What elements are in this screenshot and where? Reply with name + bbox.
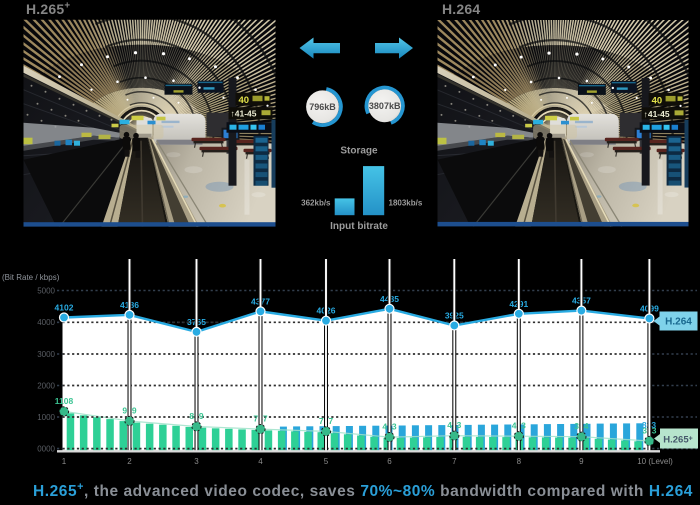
- svg-text:362kb/s: 362kb/s: [301, 198, 331, 207]
- svg-text:H.265+: H.265+: [663, 435, 692, 446]
- svg-text:8: 8: [517, 457, 522, 466]
- svg-text:5: 5: [324, 457, 329, 466]
- svg-text:4: 4: [258, 457, 263, 466]
- svg-text:Input bitrate: Input bitrate: [330, 221, 388, 232]
- svg-text:9: 9: [579, 457, 584, 466]
- svg-text:2: 2: [127, 457, 132, 466]
- svg-text:5000: 5000: [37, 286, 55, 295]
- svg-text:1000: 1000: [37, 413, 55, 422]
- svg-text:1: 1: [62, 457, 67, 466]
- svg-text:1803kb/s: 1803kb/s: [389, 198, 423, 207]
- svg-text:0000: 0000: [37, 444, 55, 453]
- svg-text:10 (Level): 10 (Level): [637, 457, 673, 466]
- svg-text:Storage: Storage: [340, 146, 378, 157]
- svg-text:4000: 4000: [37, 318, 55, 327]
- svg-text:(Bit Rate / kbps): (Bit Rate / kbps): [2, 273, 60, 282]
- svg-text:3807kB: 3807kB: [369, 101, 401, 111]
- svg-text:3: 3: [194, 457, 199, 466]
- svg-text:2000: 2000: [37, 381, 55, 390]
- svg-text:H.264: H.264: [665, 317, 692, 328]
- svg-text:6: 6: [387, 457, 392, 466]
- svg-text:3000: 3000: [37, 350, 55, 359]
- svg-text:7: 7: [452, 457, 457, 466]
- svg-text:796kB: 796kB: [309, 102, 336, 112]
- svg-text:4102: 4102: [55, 303, 74, 313]
- svg-text:1108: 1108: [55, 396, 74, 406]
